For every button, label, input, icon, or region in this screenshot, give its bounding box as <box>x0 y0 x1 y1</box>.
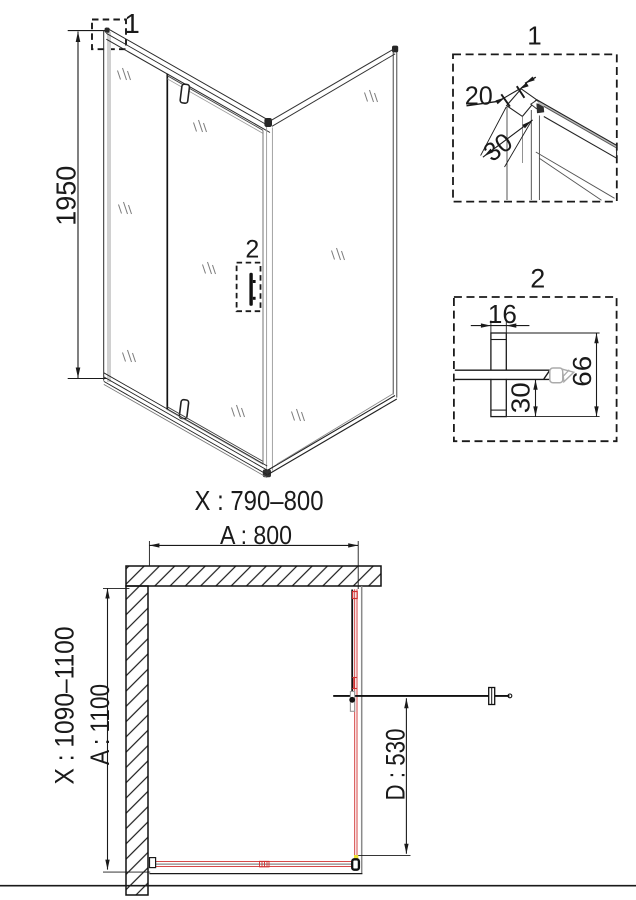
svg-text:1950: 1950 <box>51 166 82 226</box>
svg-text:X : 790–800: X : 790–800 <box>195 485 324 516</box>
svg-text:2: 2 <box>530 264 545 294</box>
svg-text:A : 800: A : 800 <box>220 520 292 550</box>
svg-text:2: 2 <box>245 236 259 264</box>
svg-text:16: 16 <box>488 299 517 329</box>
svg-text:1: 1 <box>527 21 541 51</box>
svg-text:A : 1100: A : 1100 <box>85 684 115 765</box>
svg-text:30: 30 <box>506 382 536 413</box>
svg-text:X : 1090–1100: X : 1090–1100 <box>50 627 80 785</box>
svg-text:66: 66 <box>567 356 597 387</box>
svg-text:1: 1 <box>124 8 140 39</box>
svg-text:D : 530: D : 530 <box>381 729 411 801</box>
